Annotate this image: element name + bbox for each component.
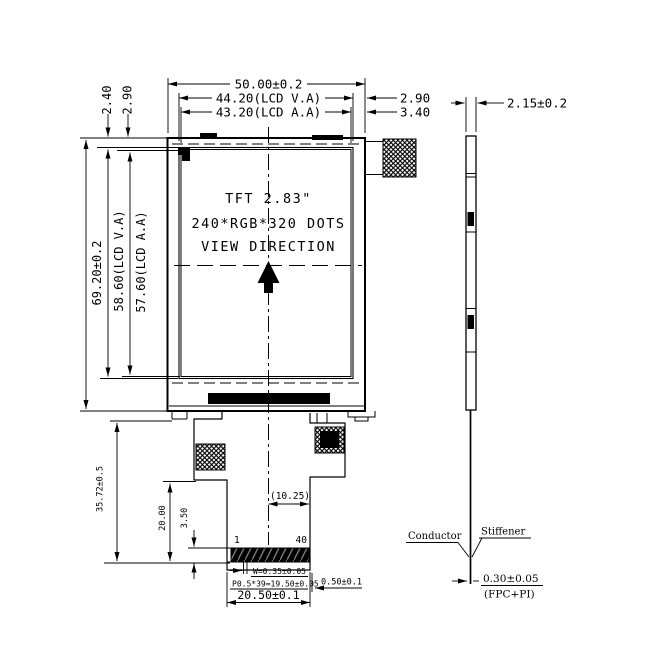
dim-fpc-length: 35.72±0.5 — [96, 466, 106, 512]
dim-tail-length: 20.00 — [158, 505, 168, 531]
dim-contact-length: 3.50 — [180, 508, 190, 528]
dim-top-gap-va: 2.40 — [100, 86, 114, 115]
pin-number-last: 40 — [296, 535, 308, 546]
drawing-canvas: TFT 2.83" 240*RGB*320 DOTS VIEW DIRECTIO… — [0, 0, 650, 651]
dim-va-width: 44.20(LCD V.A) — [216, 91, 321, 106]
crosshatch-patch-left — [196, 444, 225, 470]
label-conductor: Conductor — [408, 531, 462, 542]
panel-label-resolution: 240*RGB*320 DOTS — [191, 216, 345, 232]
panel-label-view-direction: VIEW DIRECTION — [201, 239, 336, 255]
side-tab-upper — [468, 212, 475, 226]
corner-fiducial-mark — [178, 147, 190, 155]
corner-fiducial-step — [182, 155, 190, 161]
dim-contact-width: W=0.35±0.05 — [253, 567, 306, 576]
dim-aa-width: 43.20(LCD A.A) — [216, 105, 321, 120]
label-stiffener: Stiffener — [481, 527, 525, 538]
driver-ic-bar — [208, 393, 330, 404]
top-edge-mark-left — [200, 133, 217, 138]
dim-va-height: 58.60(LCD V.A) — [112, 210, 126, 311]
dim-overall-width: 50.00±0.2 — [235, 77, 303, 92]
fpc-connector-contacts — [231, 548, 309, 562]
dim-aa-height: 57.60(LCD A.A) — [134, 211, 148, 312]
dim-right-gap-va: 2.90 — [400, 91, 430, 106]
component-on-patch — [320, 431, 339, 448]
label-fpc-note: (FPC+PI) — [484, 589, 535, 601]
dim-right-gap-aa: 3.40 — [400, 105, 430, 120]
crosshatch-component-top-right — [383, 139, 416, 177]
dim-end-margin: 0.50±0.1 — [321, 578, 362, 588]
lcd-mechanical-drawing: TFT 2.83" 240*RGB*320 DOTS VIEW DIRECTIO… — [0, 0, 650, 651]
side-tab-lower — [468, 315, 475, 329]
top-edge-mark-right — [312, 135, 343, 140]
pin-number-first: 1 — [234, 535, 240, 546]
dim-top-gap-aa: 2.90 — [121, 86, 135, 115]
dim-thickness: 2.15±0.2 — [507, 96, 567, 111]
dim-connector-width: 20.50±0.1 — [237, 588, 299, 602]
dim-center-offset: (10.25) — [270, 491, 310, 502]
panel-label-model: TFT 2.83" — [225, 191, 312, 207]
dim-overall-height: 69.20±0.2 — [90, 240, 104, 305]
dim-fpc-thickness: 0.30±0.05 — [483, 573, 539, 585]
